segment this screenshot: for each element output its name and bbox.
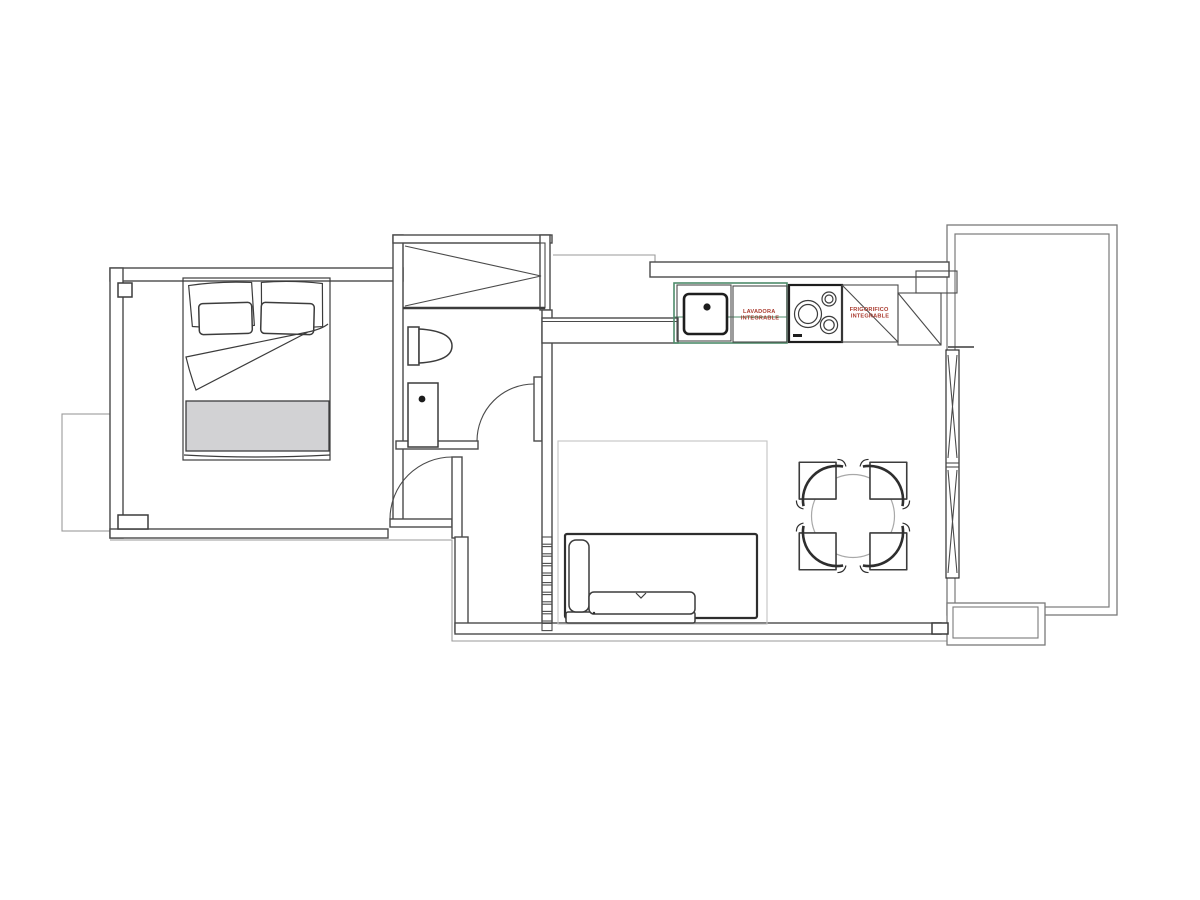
double-bed — [183, 278, 330, 460]
shower — [403, 243, 545, 308]
floor-plan-page: LAVADORA INTEGRABLE FRIGORIFICO INTEGRAB… — [0, 0, 1200, 900]
cooktop-unit — [789, 285, 842, 342]
kitchen-sink-drain — [703, 303, 710, 310]
dining-chair-east — [848, 511, 930, 593]
terrace-outer-wall — [947, 225, 1117, 615]
fridge-unit: FRIGORIFICO INTEGRABLE — [842, 285, 898, 342]
terrace-sliding-door — [946, 350, 959, 578]
bathroom-wall-top — [393, 235, 552, 243]
washing-machine-unit: LAVADORA INTEGRABLE — [733, 286, 787, 342]
bedroom-wall-right — [393, 235, 403, 520]
bed-foot-line — [184, 455, 330, 457]
shower-tray — [403, 243, 545, 308]
floor-plan-drawing: LAVADORA INTEGRABLE FRIGORIFICO INTEGRAB… — [0, 0, 1200, 900]
sink-faucet-dot — [419, 396, 426, 403]
dining-chair-south — [777, 511, 859, 593]
sliding-door-frame — [946, 350, 959, 578]
bathroom — [393, 235, 552, 449]
sofa-armrest — [569, 540, 589, 612]
bed-pillow-front-right — [261, 302, 315, 334]
bedroom-wall-top — [110, 268, 403, 281]
dining-chair-west — [777, 440, 859, 522]
bedroom-door-leaf — [390, 519, 452, 527]
bathroom-door — [477, 377, 542, 441]
bedroom-wall-bottom — [110, 529, 388, 538]
washing-machine-label: LAVADORA INTEGRABLE — [741, 309, 779, 321]
fridge-label: FRIGORIFICO INTEGRABLE — [850, 307, 891, 319]
shower-slope-lines — [405, 246, 541, 306]
cooktop-controls — [793, 334, 802, 337]
sofa-detail-dot — [593, 612, 595, 614]
outline-kitchen-step — [553, 255, 655, 263]
bedroom-walls — [110, 235, 403, 538]
chair-seat — [852, 444, 926, 518]
living-wall-left — [542, 310, 552, 632]
bed-pillow-front-left — [199, 302, 253, 334]
bathroom-door-leaf — [534, 377, 542, 441]
living-wall-bottom — [455, 623, 941, 634]
kitchen-wall-top — [650, 262, 949, 277]
bedroom-exterior-box — [62, 414, 110, 531]
sofa — [565, 534, 757, 623]
bedroom-wall-left — [110, 268, 123, 538]
wall-pier-terrace — [932, 623, 948, 634]
bathroom-door-swing-arc — [477, 384, 534, 441]
end-cabinet-diagonal — [898, 293, 941, 345]
toilet-bowl — [419, 329, 452, 363]
terrace — [947, 225, 1117, 645]
dining-chair-north — [848, 440, 930, 522]
hallway-wall-left — [455, 537, 468, 632]
toilet — [408, 327, 452, 365]
bathroom-sink — [408, 383, 438, 447]
vestibule-wall-stub — [452, 457, 462, 538]
bed-blanket — [186, 401, 329, 451]
wall-pier-bottom-left — [118, 515, 148, 529]
dining-set — [777, 440, 929, 592]
terrace-extension-outer — [947, 603, 1045, 645]
kitchen-sink-basin — [684, 294, 727, 334]
sink-counter — [408, 383, 438, 447]
bed-sheet-fold — [186, 332, 308, 390]
toilet-tank — [408, 327, 419, 365]
kitchen-counter: LAVADORA INTEGRABLE FRIGORIFICO INTEGRAB… — [542, 271, 974, 347]
kitchen-sink-unit — [677, 285, 731, 341]
wall-pier-top-left — [118, 283, 132, 297]
sofa-seat-cushions — [589, 592, 695, 614]
living-room — [542, 440, 929, 631]
